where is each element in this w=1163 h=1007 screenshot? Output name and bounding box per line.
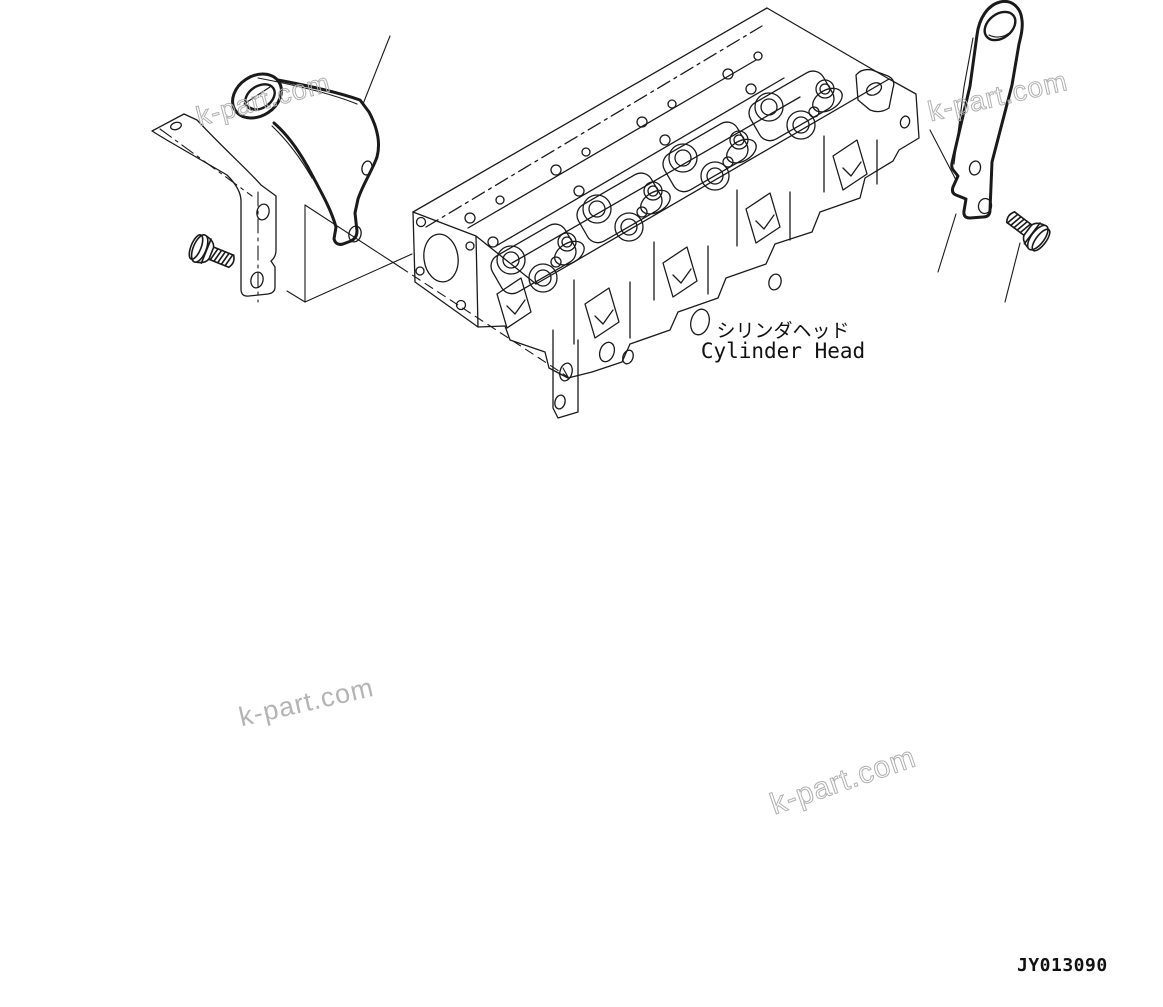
mounting-bracket — [152, 114, 276, 302]
flange-bolt-rear — [1000, 204, 1054, 302]
drawing-number: JY013090 — [1017, 955, 1108, 976]
part-label-english: Cylinder Head — [694, 339, 872, 363]
valve-clusters — [487, 63, 847, 300]
parts-diagram-canvas — [0, 0, 1163, 1007]
flange-bolt-front — [186, 232, 239, 276]
parts-diagram-page: k-part.com k-part.com k-part.com k-part.… — [0, 0, 1163, 1007]
lifting-bracket-front — [224, 36, 390, 244]
lifting-bracket-rear — [938, 1, 1022, 272]
